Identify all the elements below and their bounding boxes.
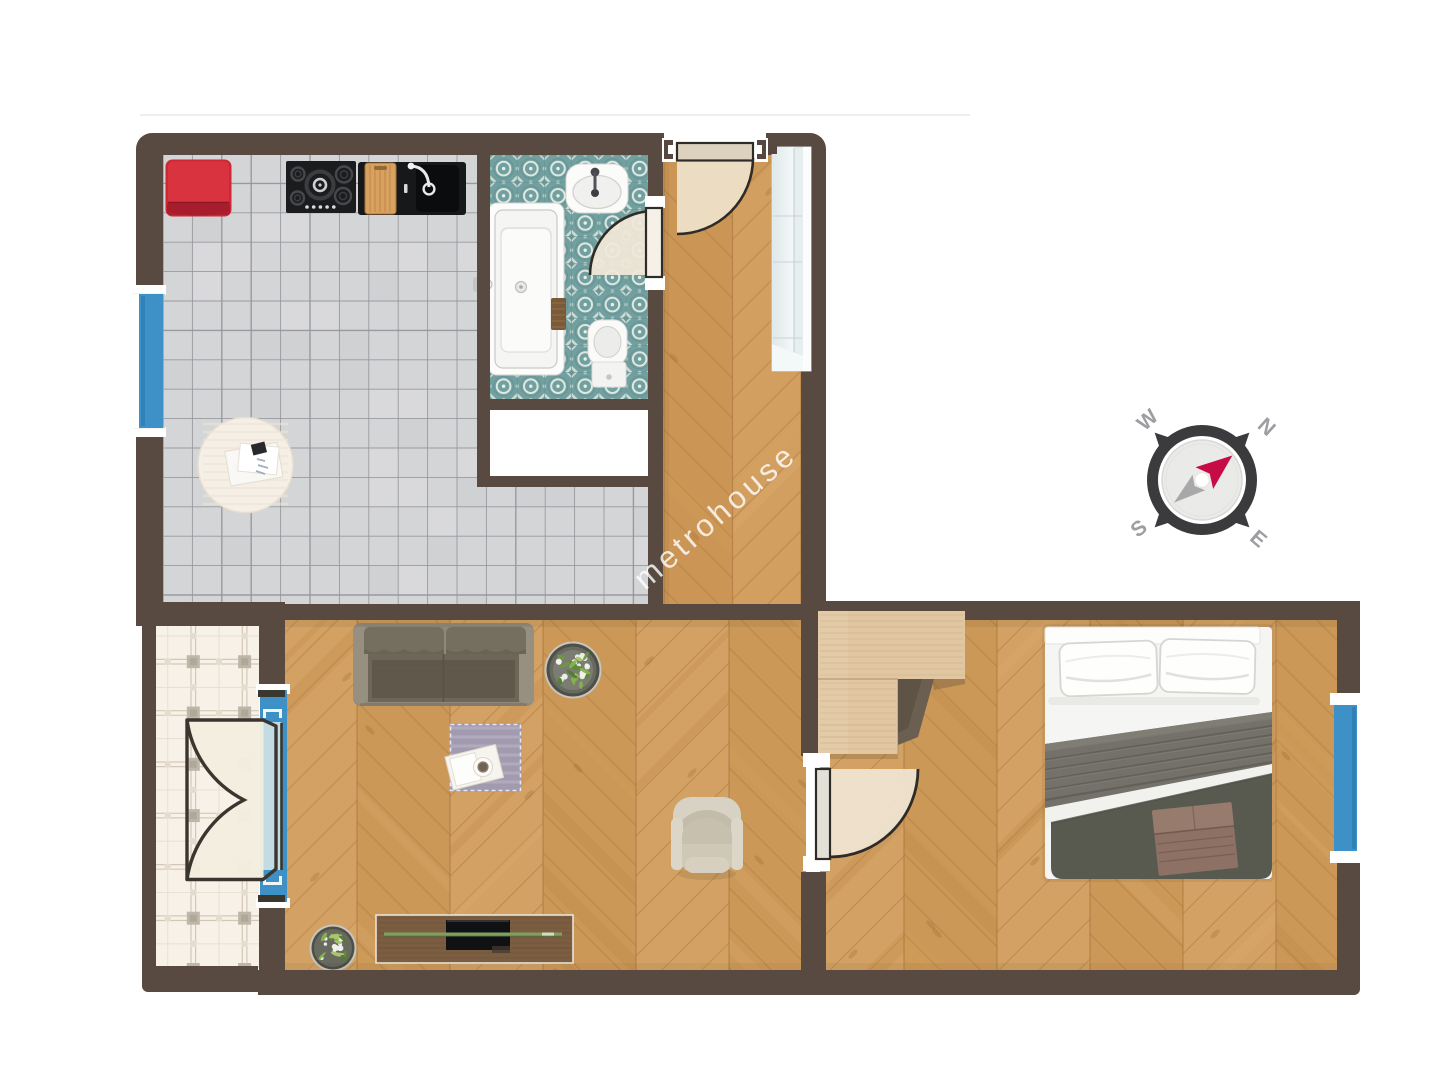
svg-text:S: S bbox=[1126, 516, 1151, 543]
svg-text:E: E bbox=[1245, 526, 1271, 553]
svg-text:N: N bbox=[1253, 414, 1280, 441]
svg-text:W: W bbox=[1133, 405, 1163, 435]
